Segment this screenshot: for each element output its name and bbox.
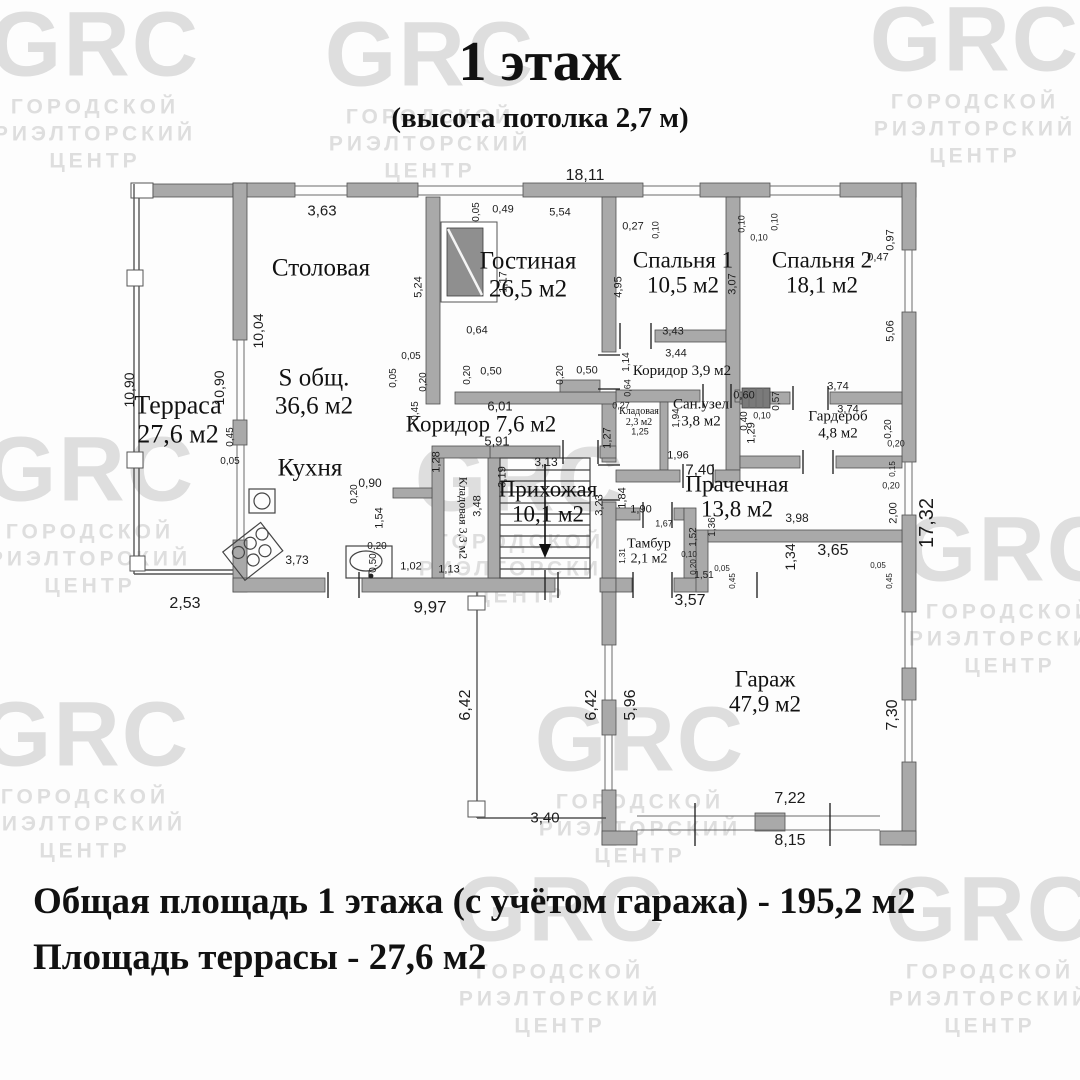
page-subtitle: (высота потолка 2,7 м) (0, 102, 1080, 135)
terrace-outline (127, 184, 233, 574)
left-wall (233, 183, 247, 592)
fireplace-icon (441, 222, 497, 302)
central-divider-wall (602, 197, 616, 578)
page-title: 1 этаж (0, 30, 1080, 94)
right-wall (902, 183, 916, 845)
terrace-area-text: Площадь террасы - 27,6 м2 (33, 936, 486, 979)
total-area-text: Общая площадь 1 этажа (с учётом гаража) … (33, 880, 915, 923)
kitchen-appliance-icon (249, 489, 275, 513)
patio-outline (468, 592, 606, 818)
living-corridor-walls (393, 197, 616, 578)
laundry-tambour-walls (616, 508, 696, 578)
kitchen-sink-icon (346, 546, 392, 578)
floor-plan-page: GRCГОРОДСКОЙРИЭЛТОРСКИЙЦЕНТРGRCГОРОДСКОЙ… (0, 0, 1080, 1080)
bedroom-walls (616, 197, 902, 482)
top-wall (131, 183, 916, 198)
house-bottom-wall (233, 578, 708, 592)
kitchen-hob-icon (223, 522, 283, 580)
garage-walls (602, 530, 916, 845)
staircase (500, 458, 590, 578)
